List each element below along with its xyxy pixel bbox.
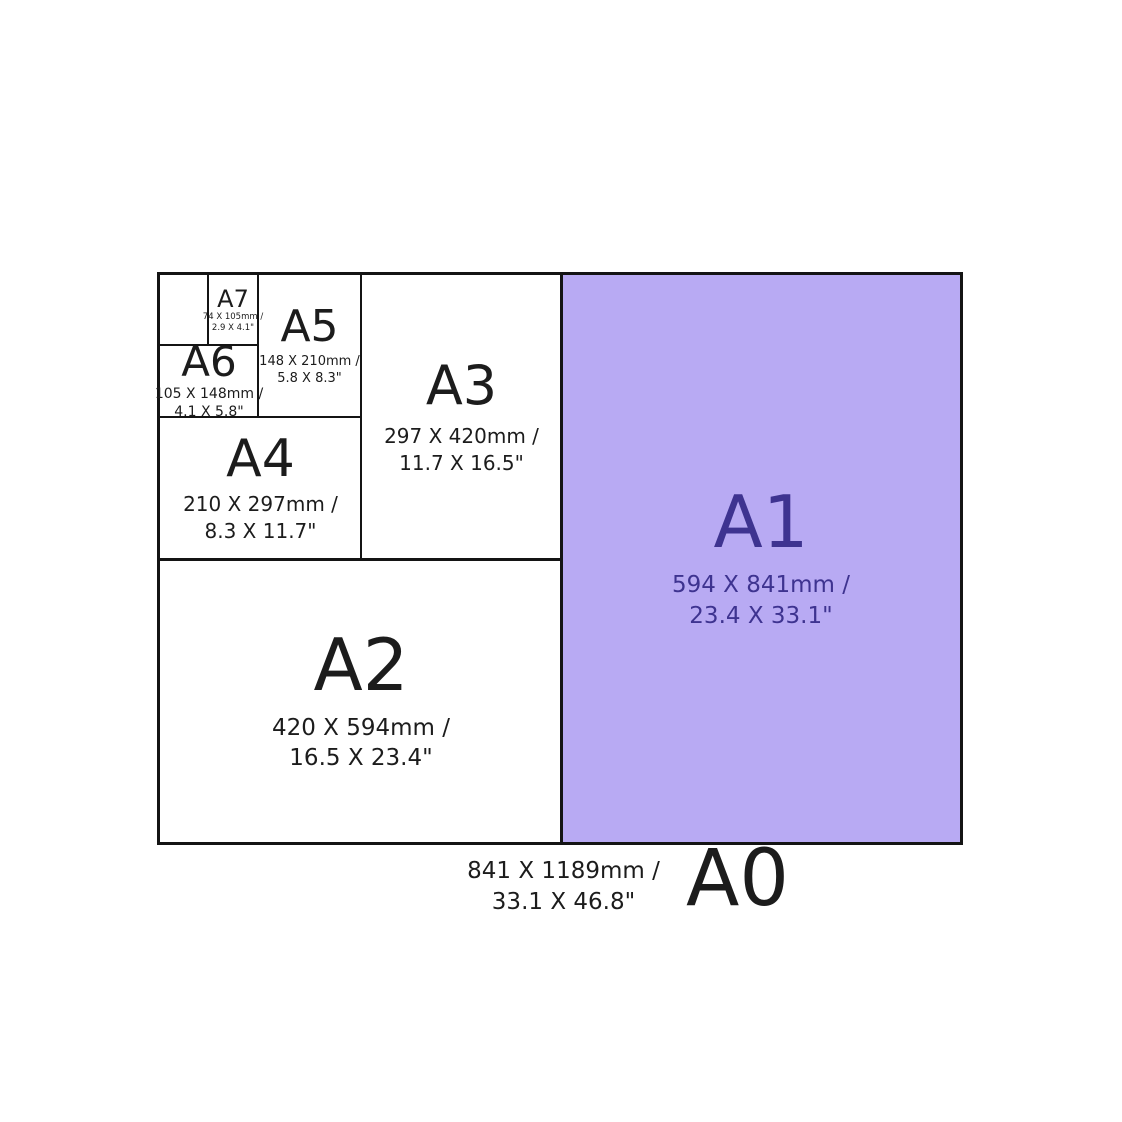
a0-outer-sheet: A7 74 X 105mm / 2.9 X 4.1" A6 105 X 148m… <box>157 272 963 845</box>
paper-sizes-diagram: A7 74 X 105mm / 2.9 X 4.1" A6 105 X 148m… <box>0 0 1122 1122</box>
paper-a2-inches: 16.5 X 23.4" <box>289 745 432 771</box>
paper-a5-mm: 148 X 210mm / <box>259 354 360 369</box>
paper-a8-empty-cell <box>160 275 208 345</box>
grid-line-a8-a7 <box>207 275 209 345</box>
paper-a0-label: A0 <box>686 840 789 918</box>
paper-a3-dimensions: 297 X 420mm / 11.7 X 16.5" <box>384 423 539 476</box>
paper-a3-inches: 11.7 X 16.5" <box>399 451 524 475</box>
paper-a2-mm: 420 X 594mm / <box>272 715 450 741</box>
paper-a1-mm: 594 X 841mm / <box>672 572 850 598</box>
grid-line-a6a5-a4 <box>160 416 361 418</box>
grid-line-a4a3-a2 <box>160 558 562 561</box>
paper-a4-label: A4 <box>226 433 295 485</box>
paper-a7-inches: 2.9 X 4.1" <box>212 323 254 333</box>
paper-a7: A7 74 X 105mm / 2.9 X 4.1" <box>208 275 258 345</box>
paper-a7-dimensions: 74 X 105mm / 2.9 X 4.1" <box>203 312 263 333</box>
paper-a2: A2 420 X 594mm / 16.5 X 23.4" <box>160 560 562 842</box>
paper-a0-mm: 841 X 1189mm / <box>467 858 660 884</box>
paper-a6-label: A6 <box>181 341 236 383</box>
paper-a3-label: A3 <box>426 359 497 413</box>
paper-a5: A5 148 X 210mm / 5.8 X 8.3" <box>258 275 361 417</box>
paper-a1-label: A1 <box>713 486 808 558</box>
paper-a4-inches: 8.3 X 11.7" <box>205 519 317 543</box>
paper-a6-mm: 105 X 148mm / <box>155 386 263 402</box>
paper-a1-dimensions: 594 X 841mm / 23.4 X 33.1" <box>672 570 850 631</box>
paper-a4-mm: 210 X 297mm / <box>183 492 338 516</box>
paper-a5-inches: 5.8 X 8.3" <box>277 371 342 386</box>
paper-a4-dimensions: 210 X 297mm / 8.3 X 11.7" <box>183 491 338 544</box>
paper-a7-mm: 74 X 105mm / <box>203 312 263 322</box>
paper-a2-label: A2 <box>313 629 408 701</box>
paper-a1: A1 594 X 841mm / 23.4 X 33.1" <box>562 275 960 842</box>
grid-line-a7-a6 <box>160 344 258 346</box>
paper-a0-inches: 33.1 X 46.8" <box>492 889 635 915</box>
grid-line-a7a6-a5 <box>257 275 259 417</box>
paper-a7-label: A7 <box>217 287 249 311</box>
paper-a1-inches: 23.4 X 33.1" <box>689 603 832 629</box>
paper-a6: A6 105 X 148mm / 4.1 X 5.8" <box>160 345 258 417</box>
paper-a5-label: A5 <box>280 305 338 349</box>
paper-a5-dimensions: 148 X 210mm / 5.8 X 8.3" <box>259 353 360 387</box>
paper-a3-mm: 297 X 420mm / <box>384 424 539 448</box>
paper-a3: A3 297 X 420mm / 11.7 X 16.5" <box>361 275 562 560</box>
paper-a2-dimensions: 420 X 594mm / 16.5 X 23.4" <box>272 713 450 774</box>
paper-a4: A4 210 X 297mm / 8.3 X 11.7" <box>160 417 361 560</box>
paper-a0-dimensions: 841 X 1189mm / 33.1 X 46.8" <box>431 856 696 918</box>
